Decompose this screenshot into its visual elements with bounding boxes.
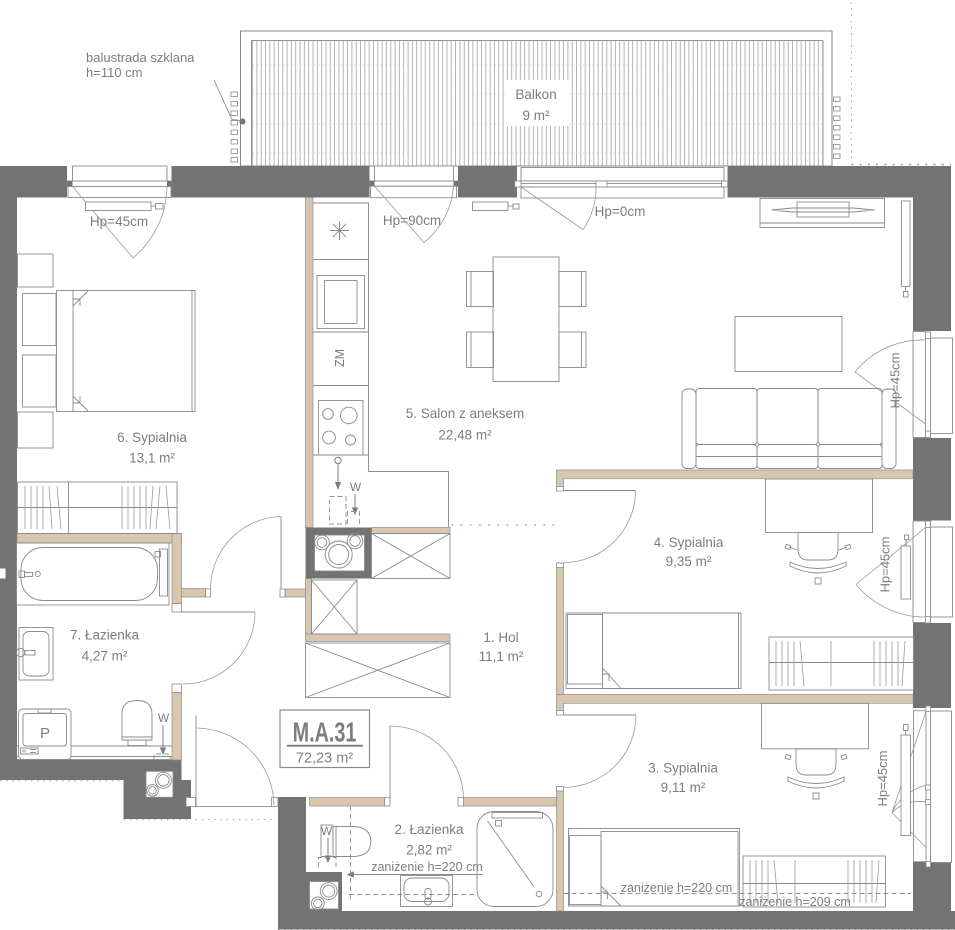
svg-text:2. Łazienka: 2. Łazienka [394,822,464,837]
svg-text:P: P [40,725,50,742]
svg-text:Hp=90cm: Hp=90cm [383,213,441,228]
svg-text:22,48 m²: 22,48 m² [438,428,492,443]
svg-text:Hp=45cm: Hp=45cm [90,214,148,229]
svg-text:W: W [158,711,170,725]
svg-text:Hp=0cm: Hp=0cm [595,204,646,219]
svg-text:M.A.31: M.A.31 [293,717,357,748]
svg-text:9,11 m²: 9,11 m² [661,780,706,795]
svg-text:4,27 m²: 4,27 m² [82,649,128,664]
svg-text:balustrada szklana: balustrada szklana [86,50,195,65]
svg-text:9 m²: 9 m² [523,108,551,123]
svg-text:13,1 m²: 13,1 m² [129,451,175,466]
svg-text:72,23 m²: 72,23 m² [296,751,353,767]
svg-text:zaniżenie h=220 cm: zaniżenie h=220 cm [621,881,733,895]
svg-text:11,1 m²: 11,1 m² [479,649,524,664]
svg-text:W: W [321,824,333,838]
svg-text:4. Sypialnia: 4. Sypialnia [654,535,724,550]
svg-text:Hp=45cm: Hp=45cm [875,751,890,807]
svg-text:zaniżenie h=220 cm: zaniżenie h=220 cm [371,860,483,874]
svg-text:9,35 m²: 9,35 m² [666,554,712,569]
svg-text:1. Hol: 1. Hol [483,630,518,645]
svg-text:Hp=45cm: Hp=45cm [888,353,903,409]
svg-text:7. Łazienka: 7. Łazienka [70,628,140,643]
svg-text:Hp=45cm: Hp=45cm [878,537,893,593]
svg-text:W: W [350,480,362,494]
svg-text:2,82 m²: 2,82 m² [406,843,452,858]
svg-text:5. Salon z aneksem: 5. Salon z aneksem [406,406,525,421]
svg-text:3. Sypialnia: 3. Sypialnia [648,761,718,776]
svg-text:ZM: ZM [333,349,347,367]
svg-text:6. Sypialnia: 6. Sypialnia [117,430,187,445]
svg-text:Balkon: Balkon [515,87,556,102]
svg-text:zaniżenie h=209 cm: zaniżenie h=209 cm [739,895,851,909]
svg-text:h=110 cm: h=110 cm [86,65,143,80]
